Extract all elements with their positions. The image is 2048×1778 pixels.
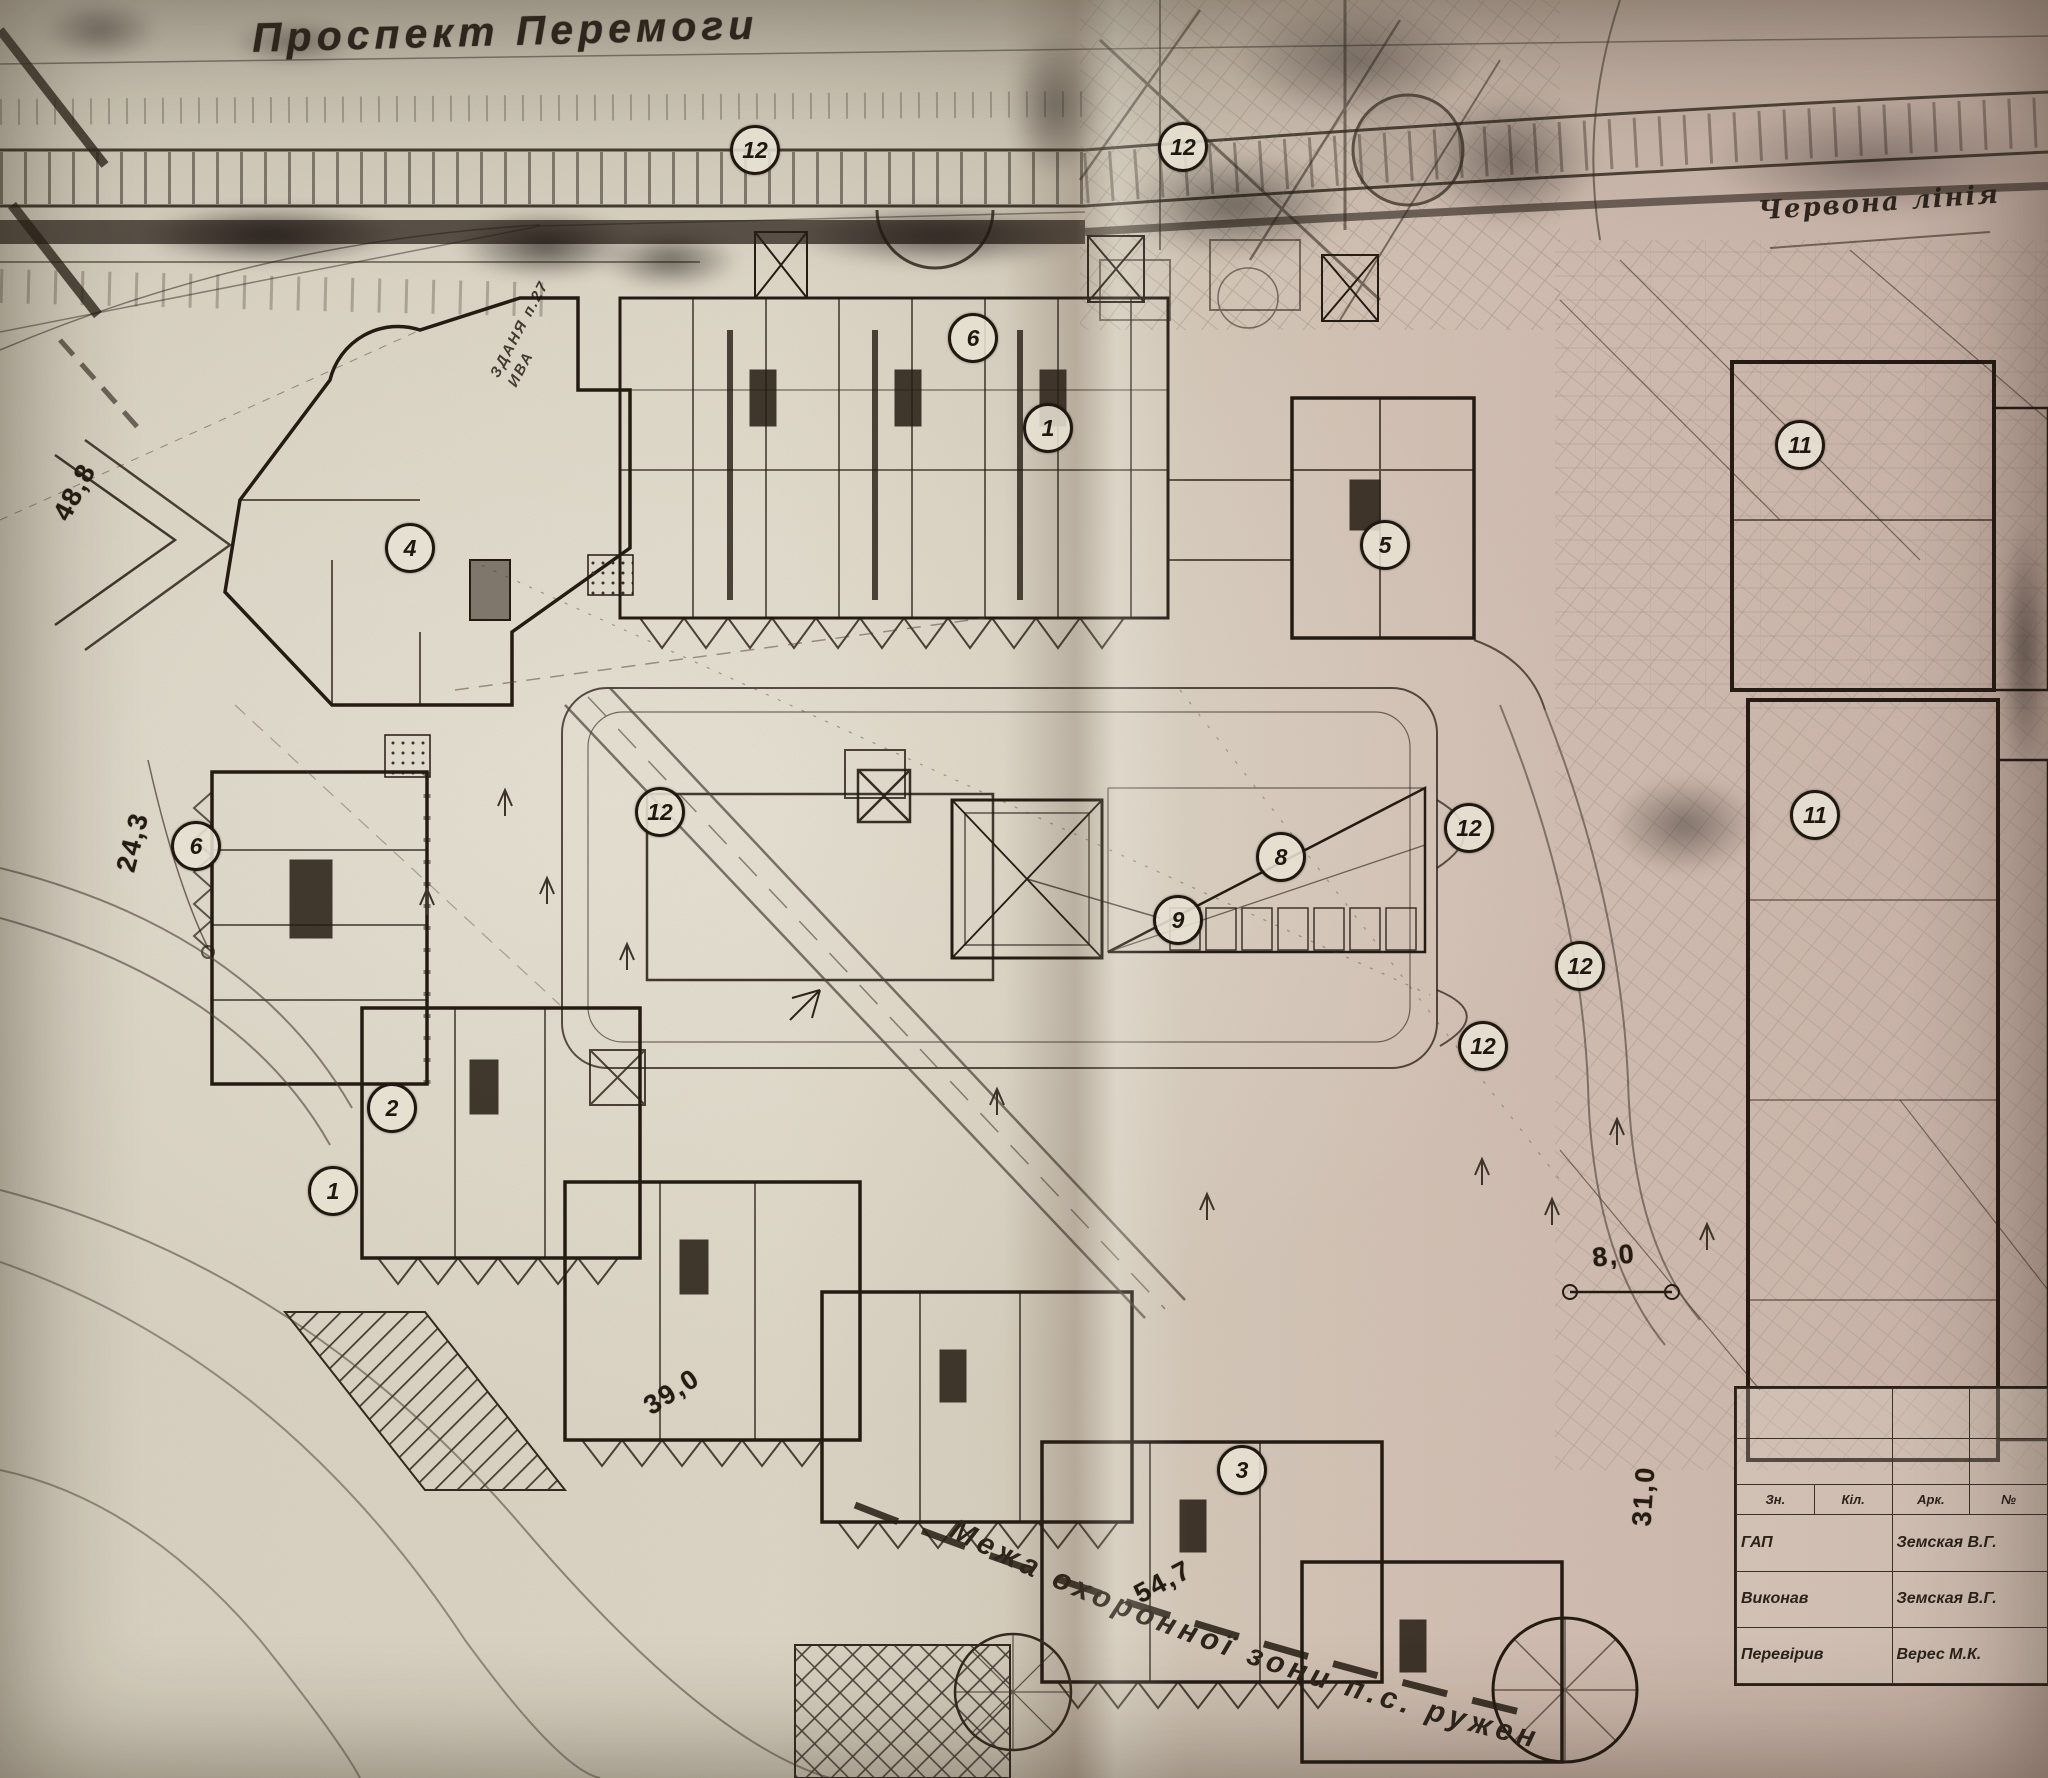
title-col-kil: Кіл. bbox=[1814, 1485, 1892, 1515]
position-marker-12: 12 bbox=[1458, 1021, 1508, 1071]
position-marker-4: 4 bbox=[385, 523, 435, 573]
title-col-zn: Зн. bbox=[1737, 1485, 1815, 1515]
title-col-num: № bbox=[1970, 1485, 2048, 1515]
title-col-ark: Арк. bbox=[1892, 1485, 1970, 1515]
position-marker-8: 8 bbox=[1256, 832, 1306, 882]
position-marker-11: 11 bbox=[1775, 420, 1825, 470]
name-pereviryv: Верес М.К. bbox=[1892, 1627, 2048, 1683]
site-plan-photo: Межа охоронної зони п.с. ружень Проспект… bbox=[0, 0, 2048, 1778]
position-marker-11: 11 bbox=[1790, 790, 1840, 840]
role-vykonav: Виконав bbox=[1737, 1571, 1893, 1627]
name-vykonav: Земская В.Г. bbox=[1892, 1571, 2048, 1627]
position-marker-1: 1 bbox=[308, 1166, 358, 1216]
position-marker-12: 12 bbox=[635, 787, 685, 837]
position-marker-3: 3 bbox=[1217, 1445, 1267, 1495]
title-block: Зн. Кіл. Арк. № ГАП Земская В.Г. Виконав… bbox=[1734, 1386, 2048, 1686]
dimension-label-8-0: 8,0 bbox=[1591, 1238, 1638, 1273]
position-marker-12: 12 bbox=[1158, 122, 1208, 172]
position-marker-12: 12 bbox=[730, 125, 780, 175]
position-marker-2: 2 bbox=[367, 1083, 417, 1133]
position-marker-9: 9 bbox=[1153, 895, 1203, 945]
position-marker-12: 12 bbox=[1444, 803, 1494, 853]
position-marker-6: 6 bbox=[948, 313, 998, 363]
dimension-label-31-0: 31,0 bbox=[1626, 1465, 1661, 1528]
role-pereviryv: Перевірив bbox=[1737, 1627, 1893, 1683]
title-block-table: Зн. Кіл. Арк. № ГАП Земская В.Г. Виконав… bbox=[1736, 1388, 2048, 1684]
position-marker-12: 12 bbox=[1555, 941, 1605, 991]
position-marker-6: 6 bbox=[171, 821, 221, 871]
position-marker-5: 5 bbox=[1360, 520, 1410, 570]
role-gap: ГАП bbox=[1737, 1515, 1893, 1571]
name-gap: Земская В.Г. bbox=[1892, 1515, 2048, 1571]
position-marker-1: 1 bbox=[1023, 403, 1073, 453]
